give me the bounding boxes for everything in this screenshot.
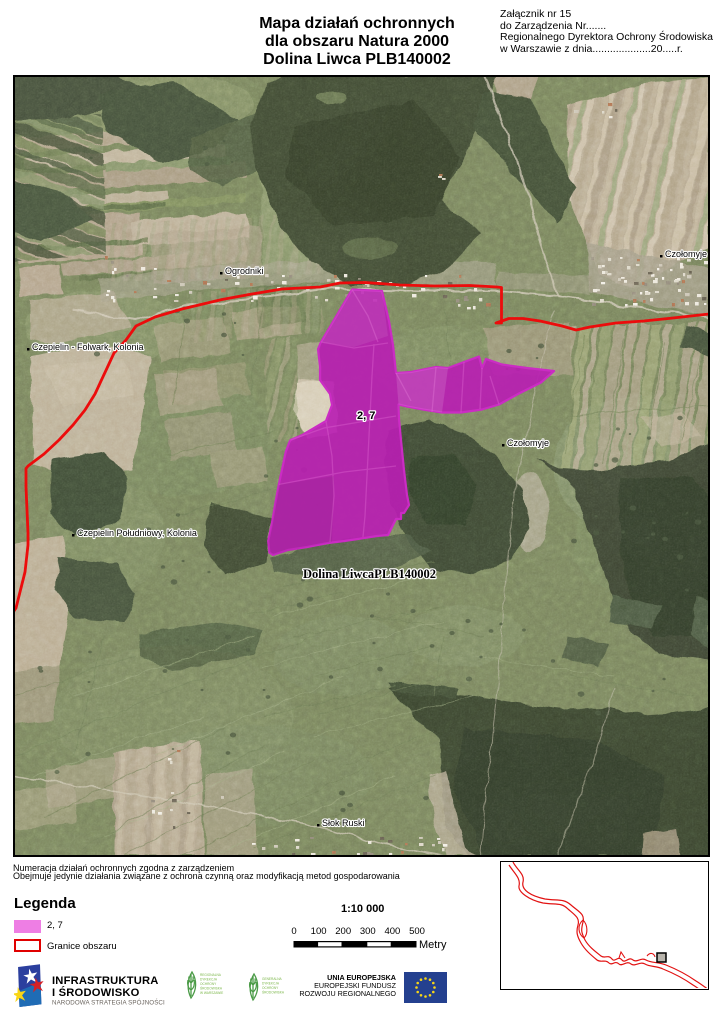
svg-text:Czołomyje: Czołomyje <box>665 249 707 259</box>
svg-text:ŚRODOWISKA: ŚRODOWISKA <box>262 990 285 995</box>
svg-text:DYREKCJA: DYREKCJA <box>262 982 280 986</box>
svg-text:Czepielin - Folwark, Kolonia: Czepielin - Folwark, Kolonia <box>32 342 144 352</box>
svg-text:Czepielin Południowy, Kolonia: Czepielin Południowy, Kolonia <box>77 528 197 538</box>
svg-text:ŚRODOWISKA: ŚRODOWISKA <box>200 986 223 991</box>
svg-text:Metry: Metry <box>419 939 447 951</box>
svg-text:Czołomyje: Czołomyje <box>507 438 549 448</box>
svg-text:INFRASTRUKTURA: INFRASTRUKTURA <box>52 975 159 987</box>
svg-text:OCHRONY: OCHRONY <box>262 986 279 990</box>
svg-text:Dolina LiwcaPLB140002: Dolina LiwcaPLB140002 <box>303 567 436 581</box>
svg-text:I ŚRODOWISKO: I ŚRODOWISKO <box>52 986 140 999</box>
svg-text:0: 0 <box>291 926 296 937</box>
svg-text:Słok Ruski: Słok Ruski <box>322 818 365 828</box>
svg-text:DYREKCJA: DYREKCJA <box>200 978 218 982</box>
svg-text:REGIONALNA: REGIONALNA <box>200 973 222 977</box>
svg-text:100: 100 <box>311 926 327 937</box>
svg-text:200: 200 <box>335 926 351 937</box>
svg-text:2, 7: 2, 7 <box>357 410 375 422</box>
svg-text:NARODOWA STRATEGIA SPÓJNOŚCI: NARODOWA STRATEGIA SPÓJNOŚCI <box>52 999 165 1007</box>
svg-text:400: 400 <box>384 926 400 937</box>
svg-text:Ogrodniki: Ogrodniki <box>225 266 264 276</box>
svg-text:GENERALNA: GENERALNA <box>262 977 283 981</box>
svg-text:W WARSZAWIE: W WARSZAWIE <box>200 991 223 995</box>
svg-text:300: 300 <box>360 926 376 937</box>
svg-text:500: 500 <box>409 926 425 937</box>
svg-text:OCHRONY: OCHRONY <box>200 982 217 986</box>
